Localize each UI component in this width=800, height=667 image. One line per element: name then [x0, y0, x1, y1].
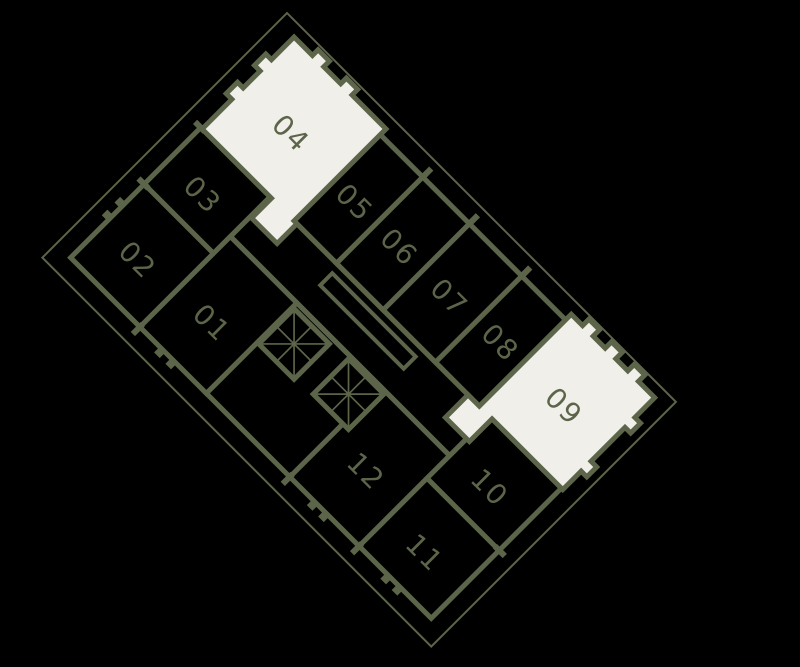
floor-plan-canvas: 01 02 03 04 05 06 07 08 09 10 11 12 — [0, 0, 800, 667]
rotated-floor-plan: 01 02 03 04 05 06 07 08 09 10 11 12 — [42, 13, 676, 647]
